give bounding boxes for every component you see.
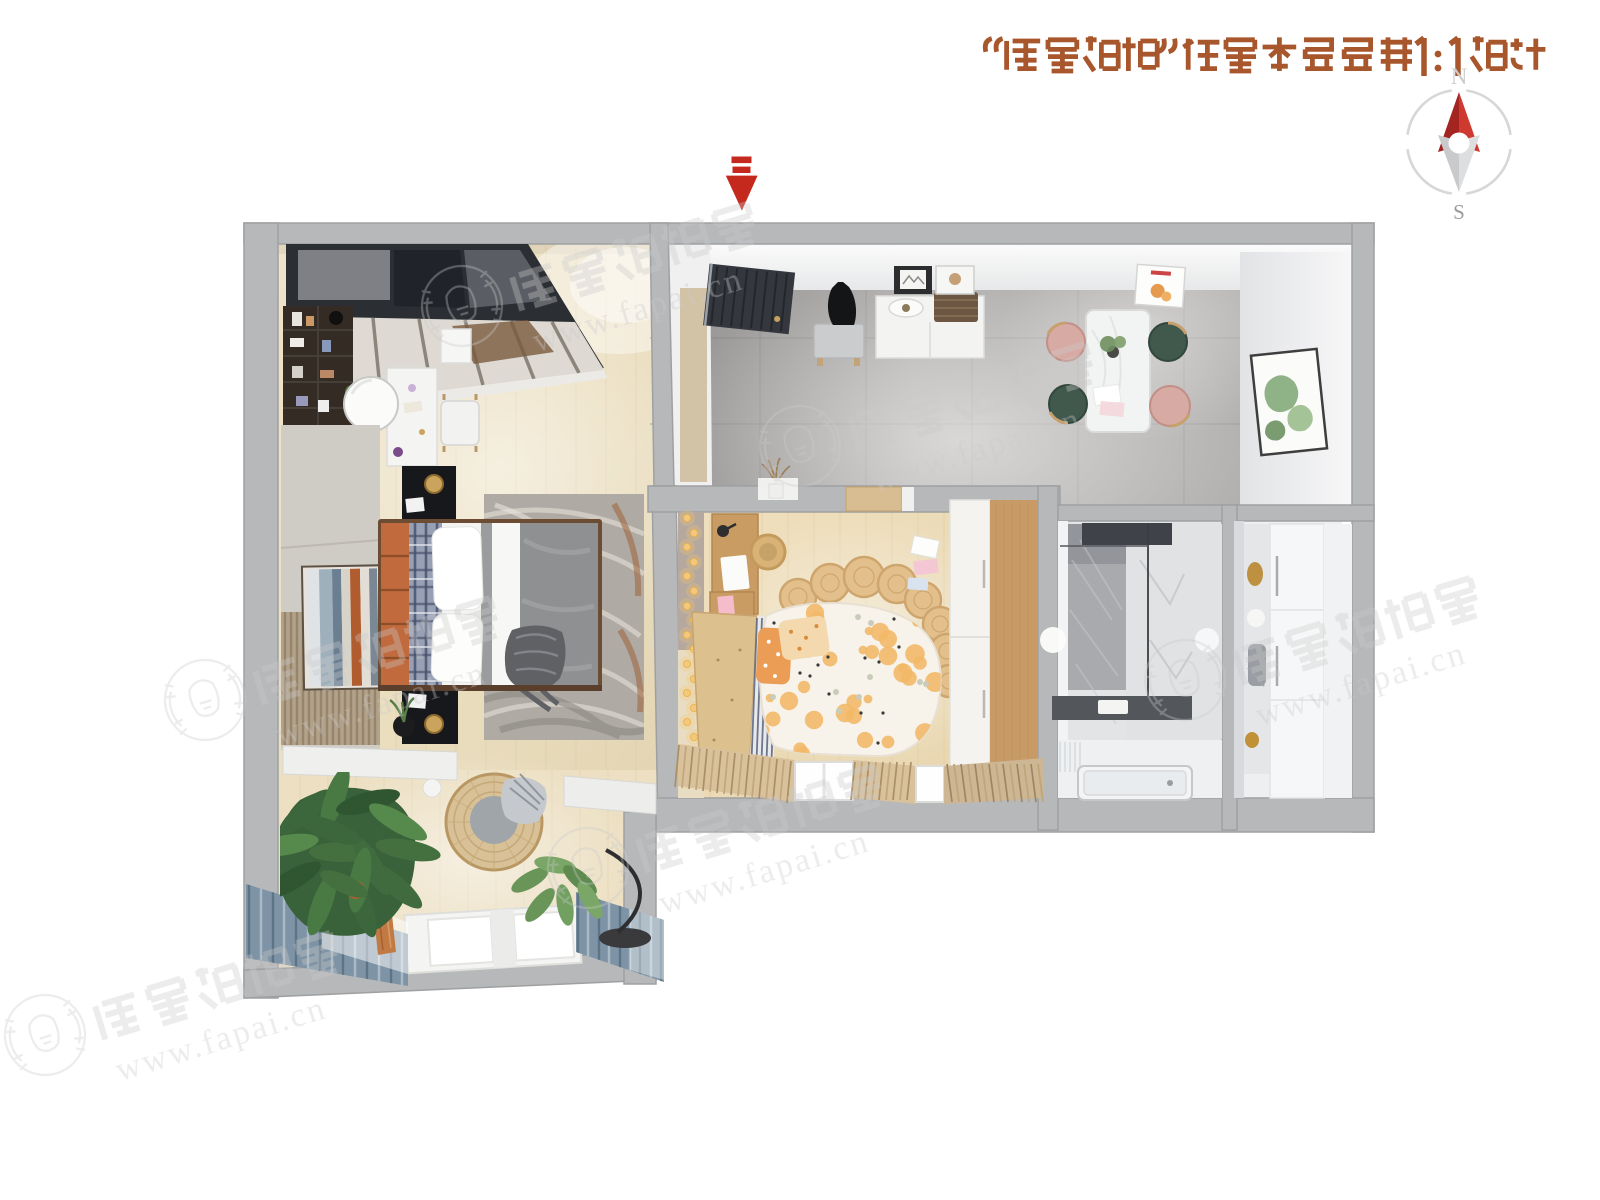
svg-text:N: N xyxy=(1451,64,1468,89)
svg-text:S: S xyxy=(1453,200,1465,224)
